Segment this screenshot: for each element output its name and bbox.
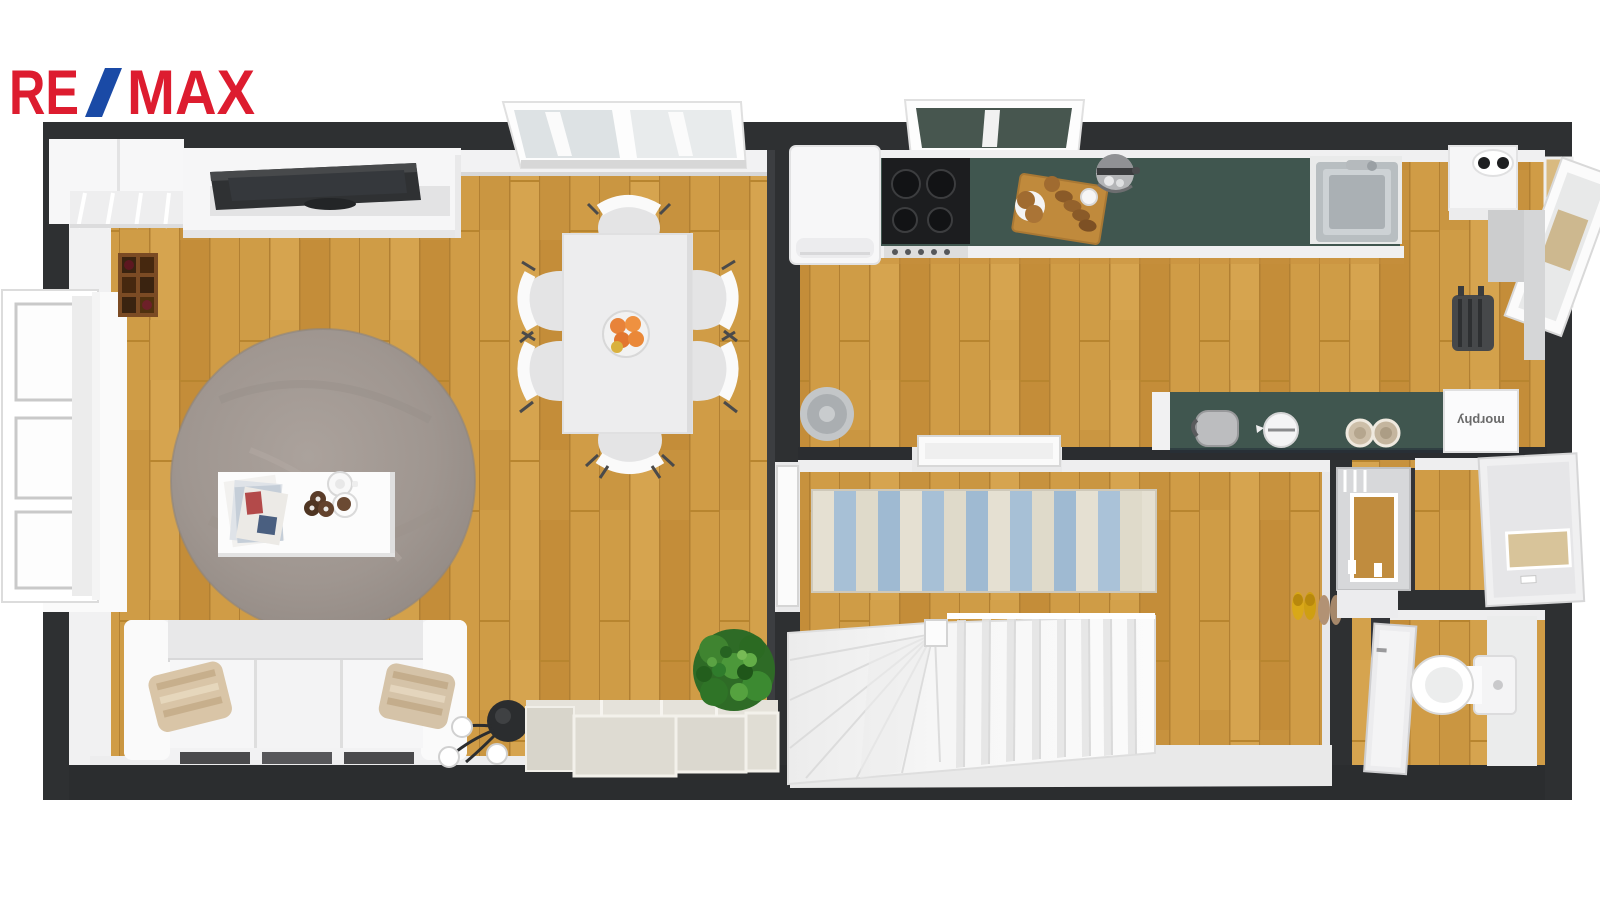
svg-text:MAX: MAX	[127, 58, 255, 128]
svg-text:morphy: morphy	[1456, 413, 1504, 428]
svg-text:RE: RE	[9, 58, 79, 128]
